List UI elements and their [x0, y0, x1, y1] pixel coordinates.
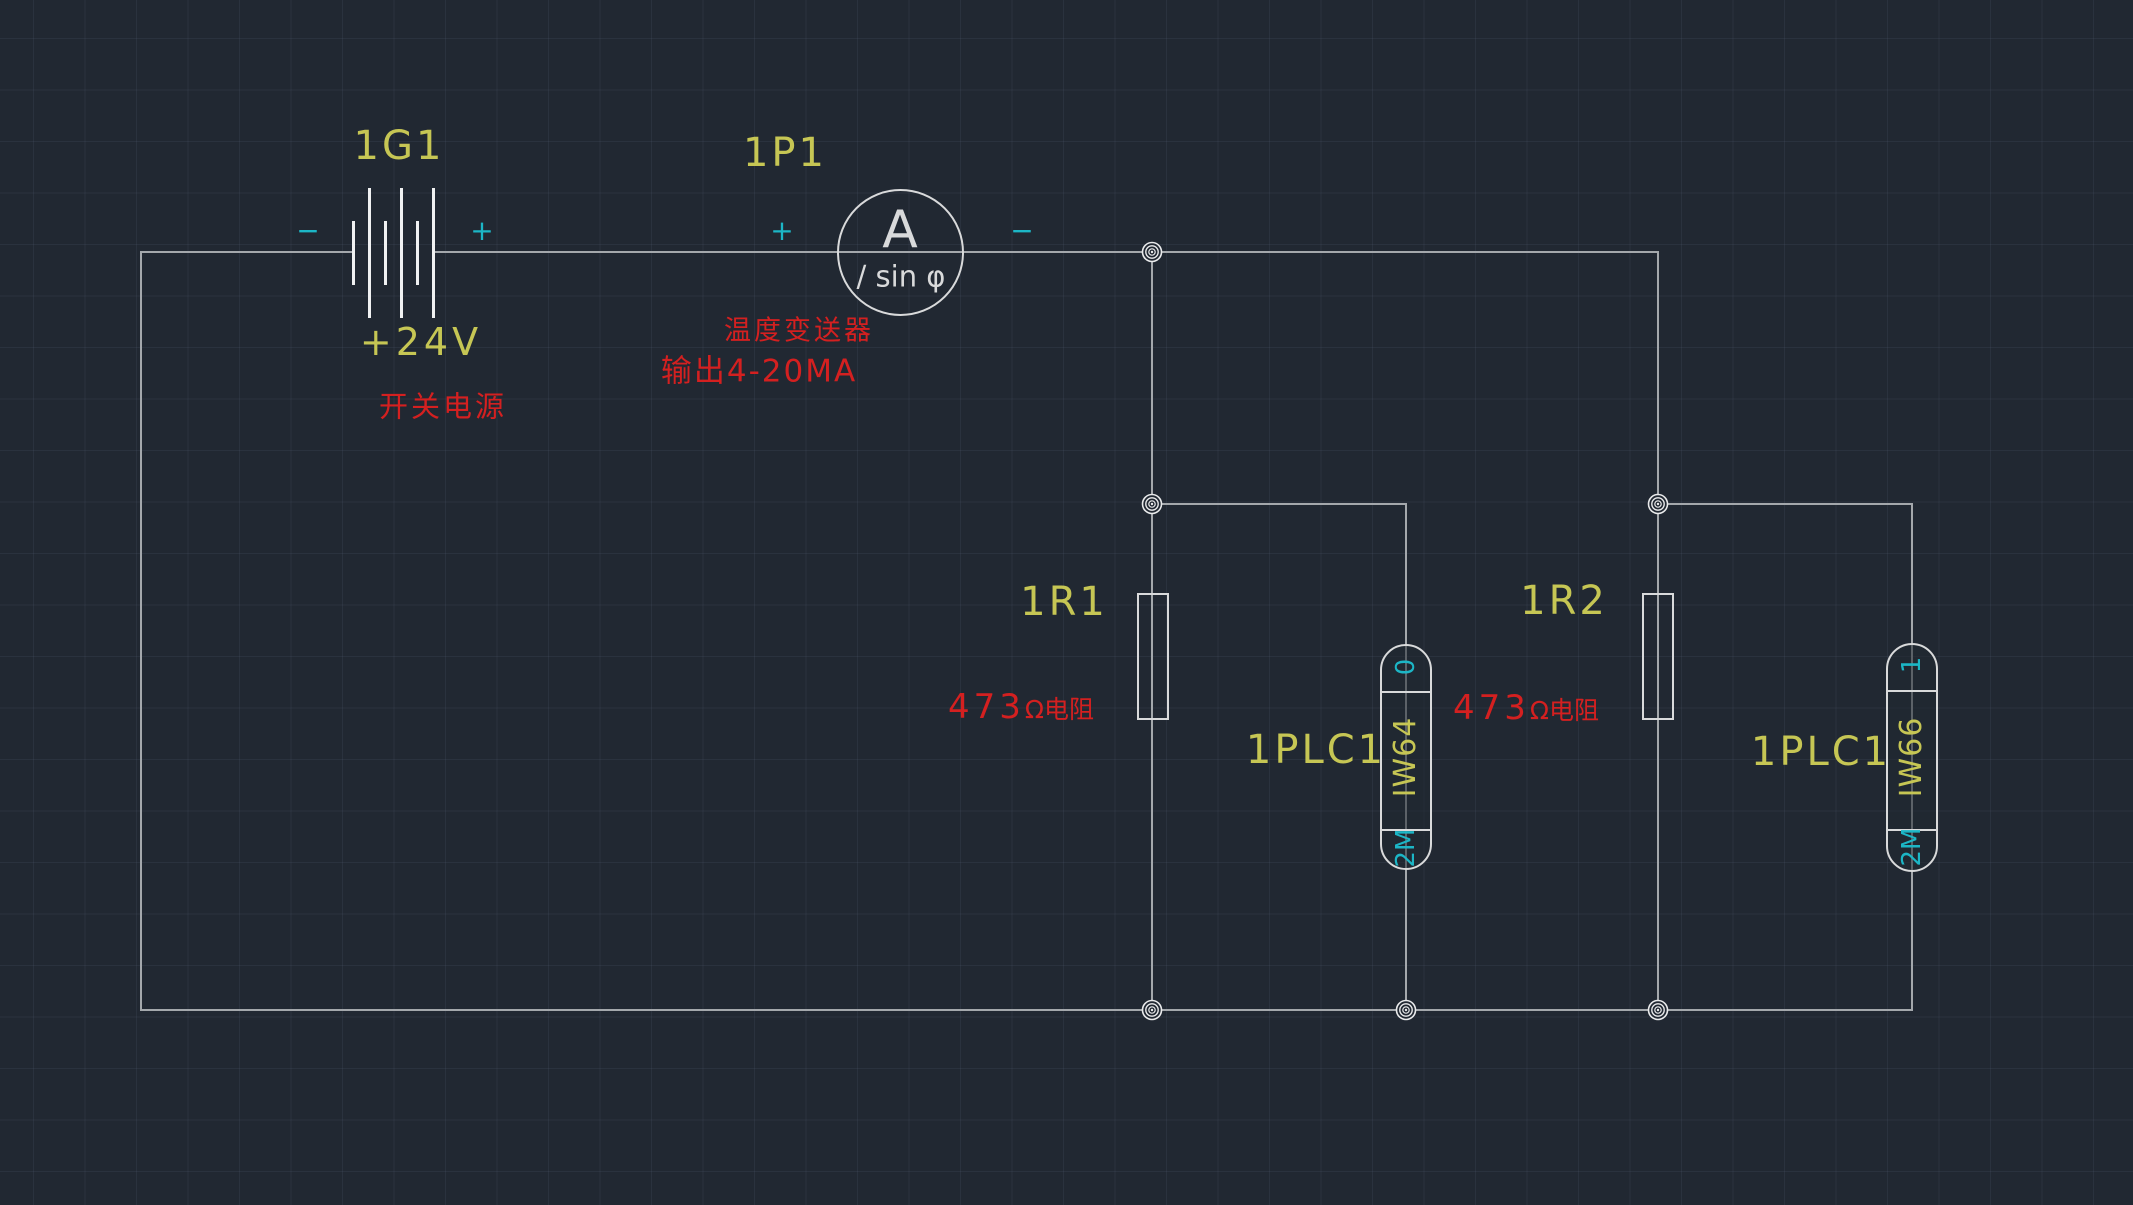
battery-plate	[432, 188, 435, 318]
resistor-unit: Ω电阻	[1025, 695, 1094, 724]
resistor-ref-label[interactable]: 1R2	[1520, 581, 1608, 621]
wire[interactable]	[140, 251, 354, 253]
ammeter-plus-label[interactable]: +	[770, 217, 793, 245]
plc-address-label: IW66	[1897, 717, 1927, 798]
battery-plus-label[interactable]: +	[470, 217, 493, 245]
resistor-ref-label[interactable]: 1R1	[1020, 582, 1108, 622]
wire-junction-icon[interactable]	[1139, 239, 1165, 265]
resistor-value-label[interactable]: 473Ω电阻	[948, 690, 1094, 724]
wire[interactable]	[433, 251, 1659, 253]
battery-plate	[416, 221, 419, 285]
wire[interactable]	[1151, 503, 1406, 505]
ammeter-letter: A	[882, 204, 918, 256]
ammeter-function-label: / sin φ	[857, 263, 946, 292]
transmitter-description-line1[interactable]: 温度变送器	[724, 318, 874, 345]
ammeter-minus-label[interactable]: −	[1010, 217, 1033, 245]
terminal-divider	[1888, 690, 1936, 692]
resistor-unit: Ω电阻	[1530, 696, 1599, 725]
wire-junction-icon[interactable]	[1139, 997, 1165, 1023]
battery-plate	[400, 188, 403, 318]
plc-ref-label[interactable]: 1PLC1	[1246, 730, 1386, 770]
plc-pin-top-label: 0	[1393, 659, 1419, 676]
plc-pin-top-label: 1	[1899, 657, 1925, 674]
battery-plate	[352, 221, 355, 285]
battery-description-label[interactable]: 开关电源	[379, 393, 507, 422]
transmitter-description-line2[interactable]: 输出4-20MA	[661, 357, 857, 388]
plc-pin-bottom-label: 2M	[1899, 828, 1925, 867]
cad-canvas[interactable]: 1G1 +24V 开关电源 − + A / sin φ 1P1 + − 温度变送…	[0, 0, 2133, 1205]
battery-minus-label[interactable]: −	[296, 217, 319, 245]
wire-junction-icon[interactable]	[1139, 491, 1165, 517]
battery-plate	[384, 221, 387, 285]
wire-junction-icon[interactable]	[1645, 997, 1671, 1023]
battery-ref-label[interactable]: 1G1	[354, 126, 445, 166]
plc-ref-label[interactable]: 1PLC1	[1751, 732, 1891, 772]
plc-address-label: IW64	[1391, 717, 1421, 798]
resistor-value: 473	[948, 687, 1025, 727]
battery-voltage-label[interactable]: +24V	[360, 323, 482, 361]
terminal-divider	[1382, 691, 1430, 693]
resistor-symbol[interactable]	[1642, 593, 1674, 720]
wire[interactable]	[140, 251, 142, 1011]
resistor-value: 473	[1453, 688, 1530, 728]
plc-pin-bottom-label: 2M	[1393, 829, 1419, 868]
wire-junction-icon[interactable]	[1645, 491, 1671, 517]
battery-plate	[368, 188, 371, 318]
wire[interactable]	[1657, 503, 1913, 505]
wire-junction-icon[interactable]	[1393, 997, 1419, 1023]
resistor-value-label[interactable]: 473Ω电阻	[1453, 691, 1599, 725]
ammeter-ref-label[interactable]: 1P1	[743, 133, 827, 173]
resistor-symbol[interactable]	[1137, 593, 1169, 720]
